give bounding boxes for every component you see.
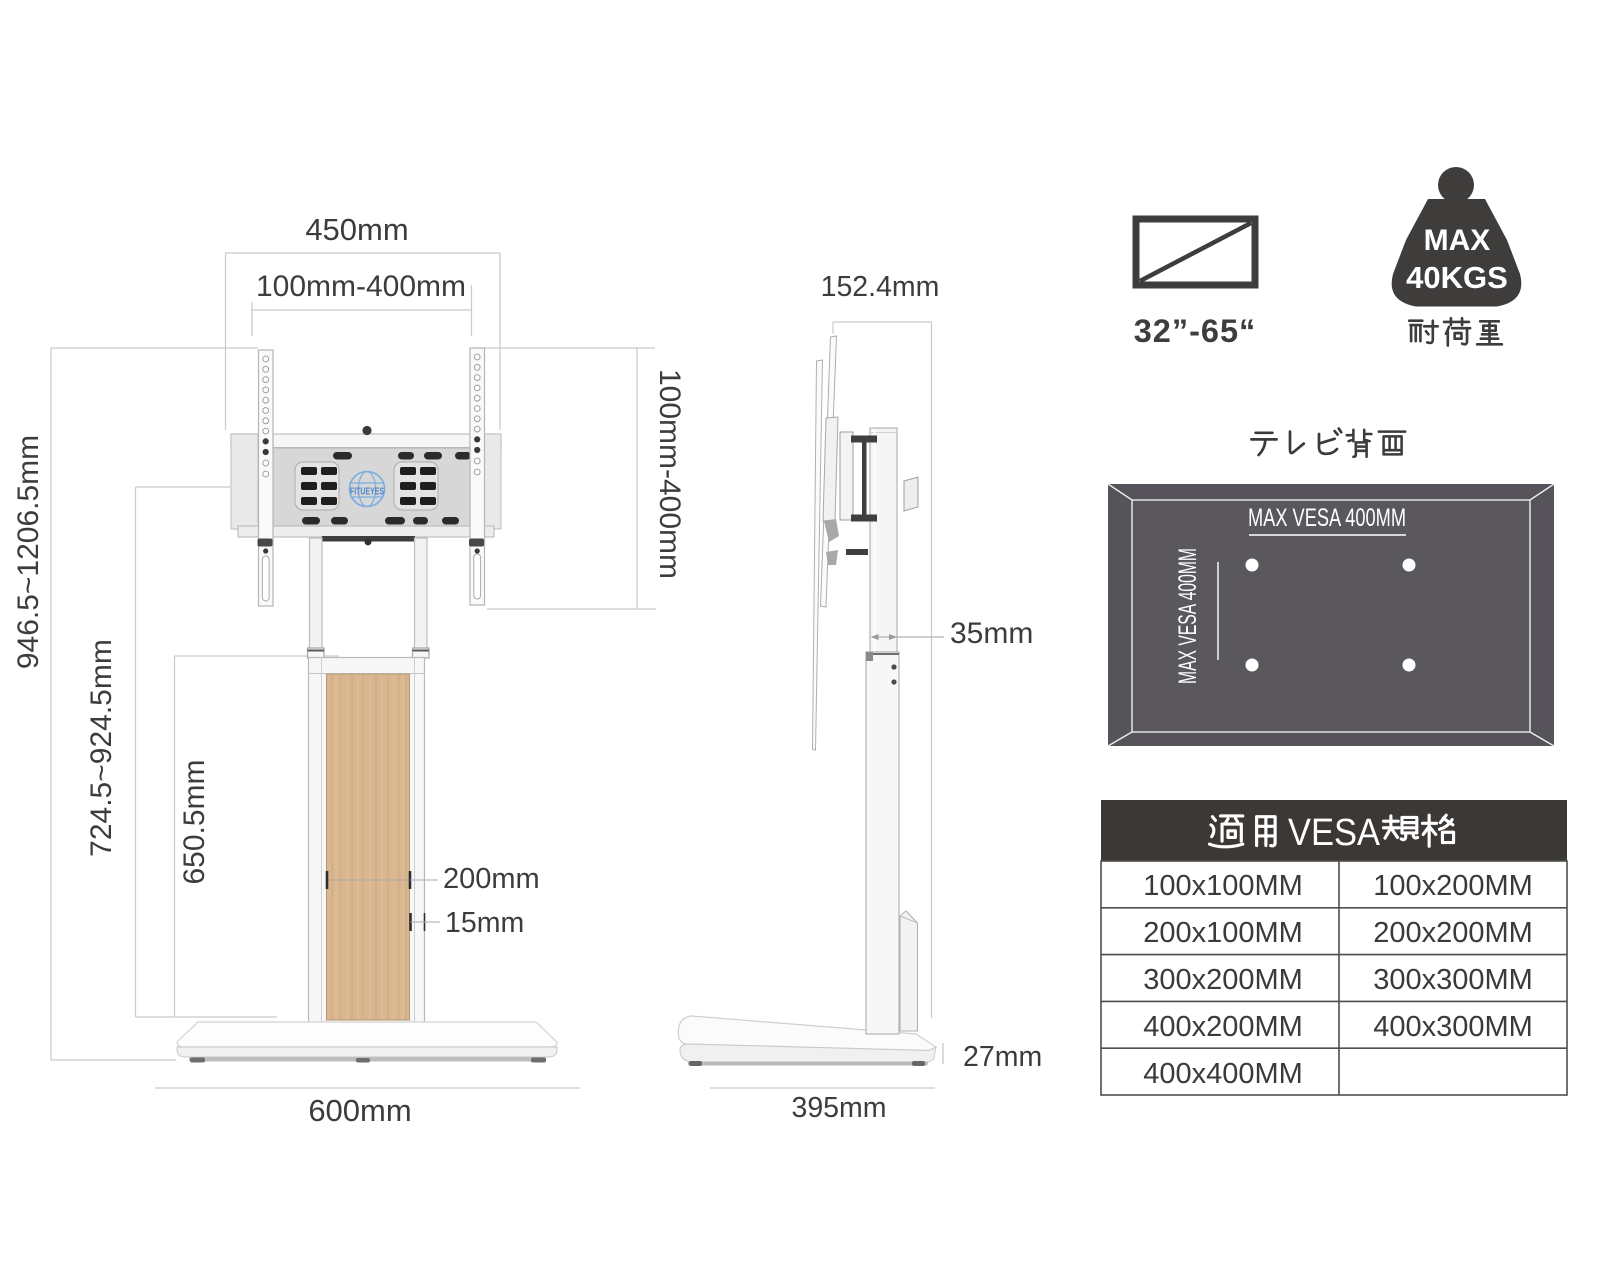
svg-text:VESA: VESA — [1288, 812, 1381, 854]
svg-text:40KGS: 40KGS — [1406, 260, 1508, 295]
svg-text:300x200MM: 300x200MM — [1143, 964, 1303, 996]
svg-text:400x400MM: 400x400MM — [1143, 1058, 1303, 1090]
svg-text:MAX VESA 400MM: MAX VESA 400MM — [1174, 548, 1202, 684]
svg-text:100mm-400mm: 100mm-400mm — [653, 369, 686, 579]
svg-text:100mm-400mm: 100mm-400mm — [256, 270, 466, 303]
svg-text:35mm: 35mm — [950, 617, 1033, 650]
svg-text:100x200MM: 100x200MM — [1373, 870, 1533, 902]
svg-text:200x100MM: 200x100MM — [1143, 917, 1303, 949]
svg-text:32”-65“: 32”-65“ — [1134, 313, 1257, 349]
svg-text:100x100MM: 100x100MM — [1143, 870, 1303, 902]
svg-text:600mm: 600mm — [308, 1093, 411, 1128]
svg-text:27mm: 27mm — [963, 1041, 1042, 1073]
svg-text:400x200MM: 400x200MM — [1143, 1011, 1303, 1043]
svg-text:450mm: 450mm — [305, 212, 408, 247]
svg-text:MAX VESA 400MM: MAX VESA 400MM — [1248, 504, 1406, 532]
svg-text:MAX: MAX — [1424, 224, 1491, 257]
svg-text:400x300MM: 400x300MM — [1373, 1011, 1533, 1043]
svg-text:200x200MM: 200x200MM — [1373, 917, 1533, 949]
svg-text:200mm: 200mm — [443, 863, 540, 895]
svg-text:FITUEYES: FITUEYES — [350, 487, 384, 498]
svg-text:152.4mm: 152.4mm — [821, 271, 940, 303]
svg-text:15mm: 15mm — [445, 907, 524, 939]
svg-text:300x300MM: 300x300MM — [1373, 964, 1533, 996]
svg-text:724.5~924.5mm: 724.5~924.5mm — [85, 639, 118, 857]
svg-text:946.5~1206.5mm: 946.5~1206.5mm — [12, 435, 45, 669]
svg-text:650.5mm: 650.5mm — [178, 759, 211, 884]
svg-text:395mm: 395mm — [791, 1092, 886, 1124]
